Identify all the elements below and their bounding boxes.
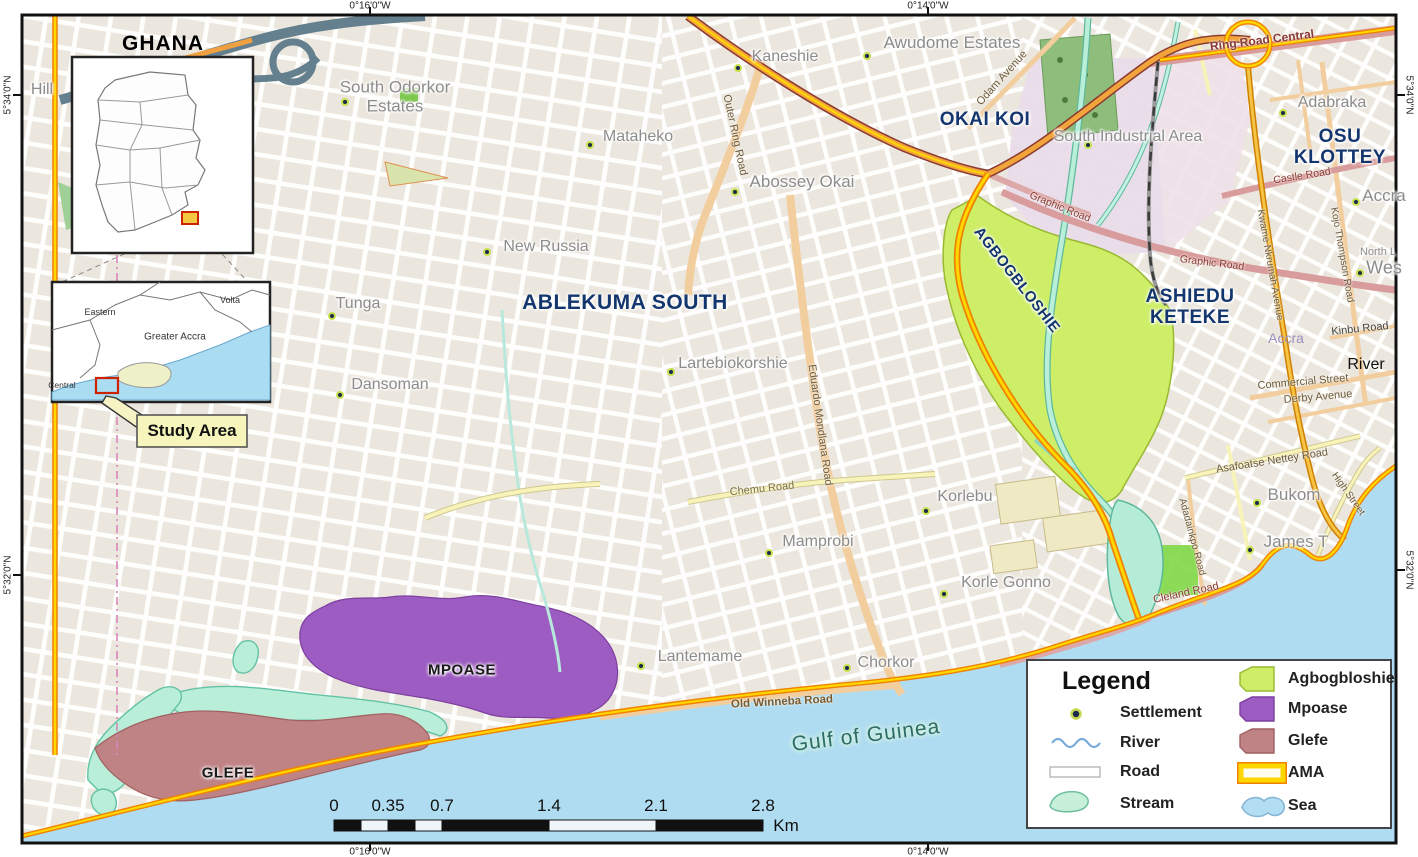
coord-left-top: 5°34'0"N xyxy=(3,76,14,115)
scale-tick-035: 0.35 xyxy=(371,796,404,816)
coord-top-left: 0°16'0"W xyxy=(349,1,390,12)
scale-tick-21: 2.1 xyxy=(644,796,668,816)
coord-top-right: 0°14'0"W xyxy=(907,1,948,12)
legend-label-agbogbloshie: Agbogbloshie xyxy=(1288,670,1395,688)
legend-title: Legend xyxy=(1062,667,1151,696)
legend-label-mpoase: Mpoase xyxy=(1288,700,1348,718)
scale-tick-28: 2.8 xyxy=(751,796,775,816)
legend-mpoase-icon xyxy=(1240,697,1274,721)
legend-label-settlement: Settlement xyxy=(1120,704,1202,722)
legend-label-road: Road xyxy=(1120,763,1160,781)
legend-label-stream: Stream xyxy=(1120,795,1174,813)
scale-tick-14: 1.4 xyxy=(537,796,561,816)
coord-right-top: 5°34'0"N xyxy=(1404,76,1415,115)
legend-road-icon xyxy=(1050,767,1100,777)
legend-settlement-icon xyxy=(1072,710,1081,719)
coord-left-bottom: 5°32'0"N xyxy=(3,556,14,595)
legend-label-river: River xyxy=(1120,734,1160,752)
legend-stream-icon xyxy=(1050,792,1088,812)
coord-bottom-left: 0°16'0"W xyxy=(349,847,390,857)
study-area-label: Study Area xyxy=(147,421,236,441)
scale-tick-07: 0.7 xyxy=(430,796,454,816)
legend-river-icon xyxy=(1052,739,1100,747)
legend-agbogbloshie-icon xyxy=(1240,667,1274,691)
legend-sea-icon xyxy=(1242,798,1284,817)
legend-label-sea: Sea xyxy=(1288,797,1316,815)
coord-right-bottom: 5°32'0"N xyxy=(1404,551,1415,590)
ghana-inset-title: GHANA xyxy=(122,32,204,56)
legend-label-ama: AMA xyxy=(1288,764,1324,782)
scale-tick-0: 0 xyxy=(329,796,338,816)
legend-label-glefe: Glefe xyxy=(1288,732,1328,750)
inset-ghana xyxy=(72,57,253,253)
legend-glefe-icon xyxy=(1240,729,1274,753)
legend-panel: Legend Settlement River Road Stream Agbo… xyxy=(1026,659,1392,829)
scale-bar xyxy=(334,820,763,831)
scale-unit: Km xyxy=(773,816,799,836)
coord-bottom-right: 0°14'0"W xyxy=(907,847,948,857)
map-figure: 0°16'0"W 0°14'0"W 0°16'0"W 0°14'0"W 5°34… xyxy=(0,0,1418,857)
